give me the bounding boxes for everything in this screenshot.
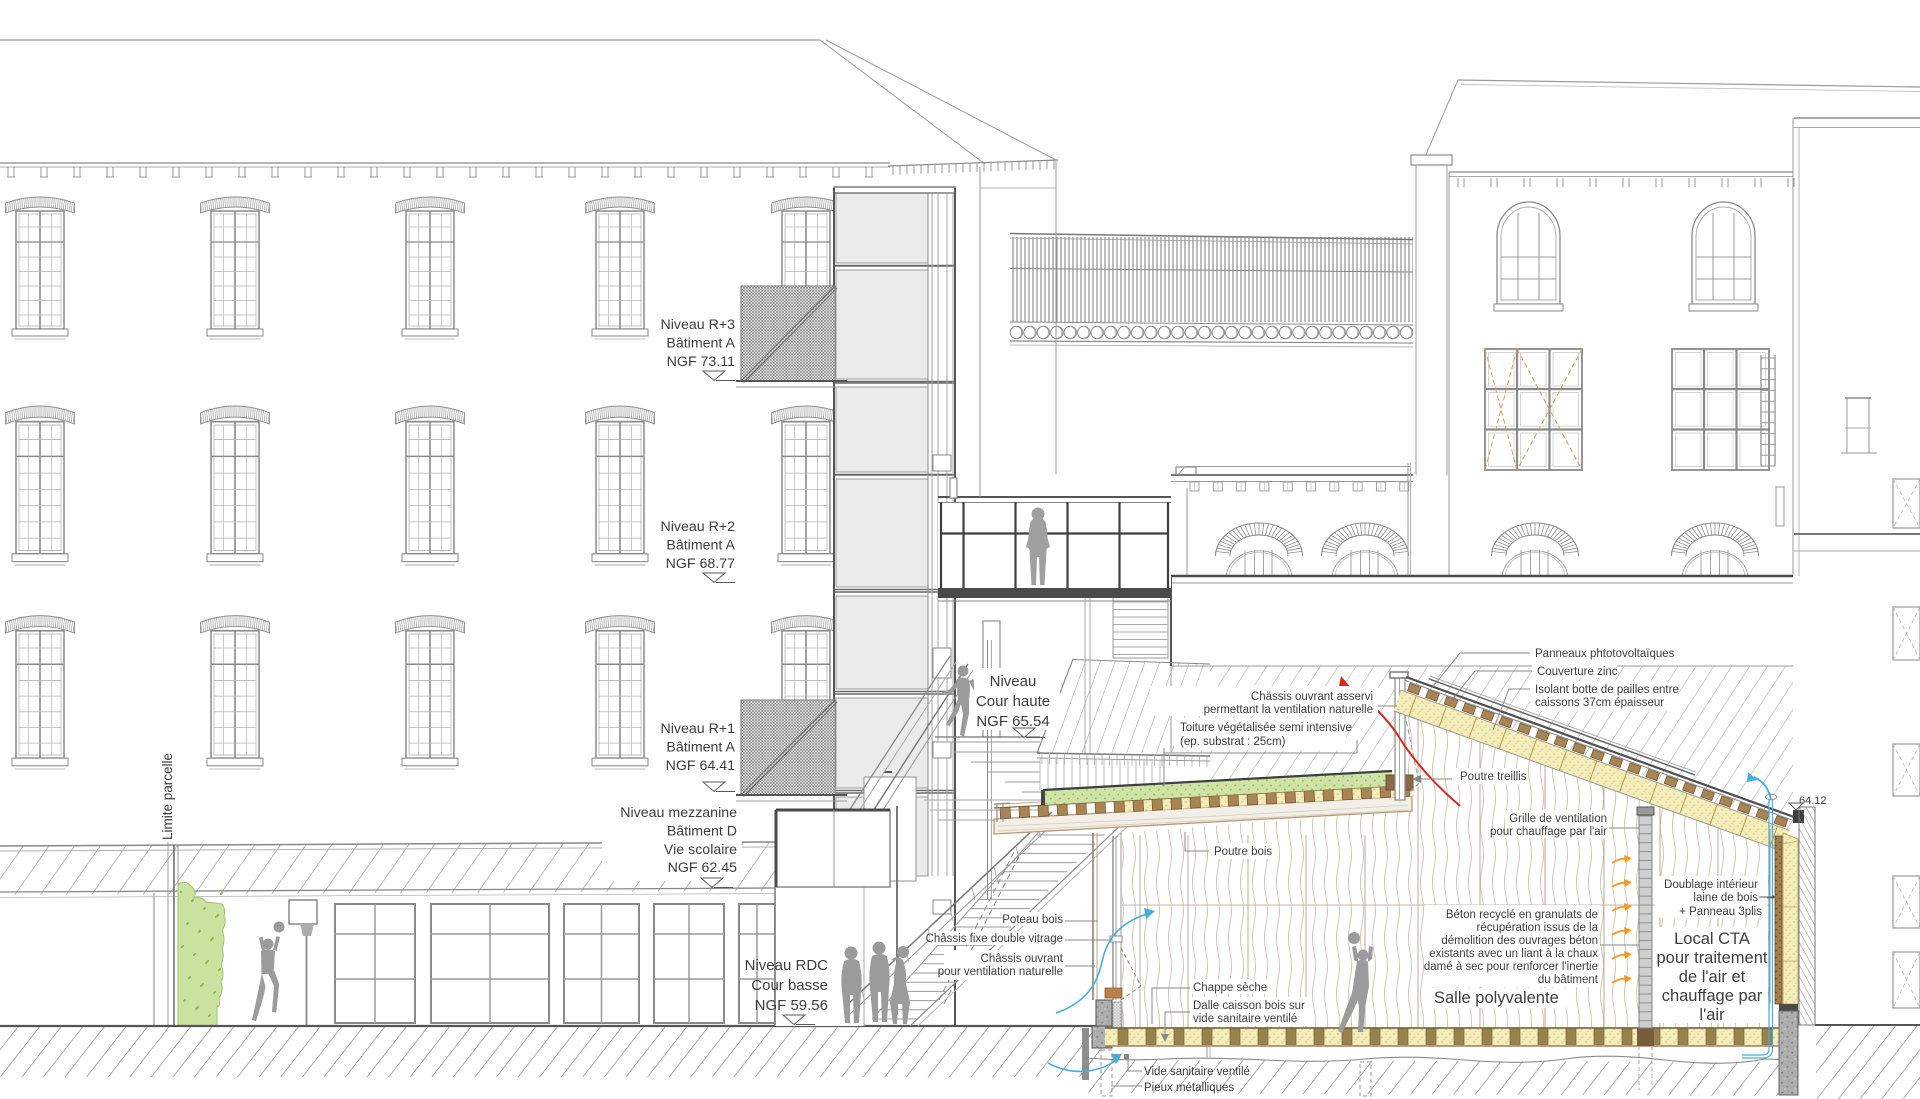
svg-text:64.12: 64.12: [1799, 795, 1827, 807]
svg-text:Chappe sèche: Chappe sèche: [1193, 982, 1267, 994]
svg-text:du bâtiment: du bâtiment: [1538, 974, 1599, 986]
svg-text:Toiture végétalisée semi inten: Toiture végétalisée semi intensive: [1180, 722, 1352, 734]
svg-text:NGF 64.41: NGF 64.41: [666, 758, 736, 774]
svg-text:Grille de ventilation: Grille de ventilation: [1509, 813, 1607, 825]
svg-text:Cour haute: Cour haute: [976, 693, 1050, 710]
svg-text:NGF 65.54: NGF 65.54: [976, 713, 1049, 730]
svg-text:Chässis ouvrant asservi: Chässis ouvrant asservi: [1251, 691, 1373, 703]
svg-text:+ Panneau 3plis: + Panneau 3plis: [1679, 906, 1762, 918]
svg-text:démolition des ouvrages béton: démolition des ouvrages béton: [1441, 935, 1598, 947]
svg-text:Niveau R+1: Niveau R+1: [660, 721, 735, 737]
svg-text:NGF 62.45: NGF 62.45: [668, 860, 738, 876]
svg-text:Limite parcelle: Limite parcelle: [160, 753, 175, 840]
svg-text:Bâtiment A: Bâtiment A: [666, 335, 735, 351]
svg-text:Dalle caisson bois sur: Dalle caisson bois sur: [1193, 1000, 1305, 1012]
svg-text:de l'air et: de l'air et: [1679, 968, 1746, 986]
svg-text:Béton recyclé en granulats de: Béton recyclé en granulats de: [1446, 909, 1598, 921]
svg-text:Local CTA: Local CTA: [1674, 930, 1750, 948]
svg-text:Châssis fixe double vitrage: Châssis fixe double vitrage: [926, 933, 1063, 945]
svg-text:récupération issus de la: récupération issus de la: [1477, 922, 1599, 934]
svg-text:Niveau mezzanine: Niveau mezzanine: [620, 805, 737, 821]
svg-text:NGF 59.56: NGF 59.56: [755, 997, 828, 1014]
svg-text:Vie scolaire: Vie scolaire: [664, 842, 737, 858]
svg-text:existants avec un liant à la c: existants avec un liant à la chaux: [1429, 948, 1598, 960]
svg-text:NGF 68.77: NGF 68.77: [666, 556, 736, 572]
svg-text:(ep. substrat : 25cm): (ep. substrat : 25cm): [1180, 736, 1286, 748]
svg-text:NGF 73.11: NGF 73.11: [667, 354, 735, 370]
svg-text:Bâtiment D: Bâtiment D: [667, 823, 737, 839]
svg-text:damé à sec pour renforcer l'in: damé à sec pour renforcer l'inertie: [1424, 961, 1598, 973]
svg-text:Niveau R+2: Niveau R+2: [660, 519, 735, 535]
svg-text:pour ventilation naturelle: pour ventilation naturelle: [938, 966, 1063, 978]
svg-text:permettant la ventilation natu: permettant la ventilation naturelle: [1204, 704, 1373, 716]
svg-text:caissons 37cm épaisseur: caissons 37cm épaisseur: [1535, 697, 1664, 709]
svg-text:Niveau R+3: Niveau R+3: [660, 317, 735, 333]
svg-text:Bâtiment A: Bâtiment A: [666, 537, 735, 553]
svg-text:chauffage par: chauffage par: [1662, 987, 1763, 1005]
svg-text:Niveau: Niveau: [990, 673, 1037, 690]
svg-text:l'air: l'air: [1699, 1006, 1725, 1024]
svg-text:Poutre treillis: Poutre treillis: [1460, 771, 1527, 783]
svg-text:pour traitement: pour traitement: [1657, 949, 1768, 967]
svg-text:Niveau RDC: Niveau RDC: [745, 957, 829, 974]
svg-text:Poutre bois: Poutre bois: [1214, 846, 1272, 858]
svg-text:Salle polyvalente: Salle polyvalente: [1434, 989, 1559, 1007]
svg-text:Poteau bois: Poteau bois: [1002, 914, 1063, 926]
svg-text:Vide sanitaire ventilé: Vide sanitaire ventilé: [1144, 1066, 1250, 1078]
svg-text:Cour basse: Cour basse: [751, 977, 828, 994]
svg-text:Doublage intérieur: Doublage intérieur: [1664, 879, 1758, 891]
svg-text:Isolant botte de pailles entre: Isolant botte de pailles entre: [1535, 684, 1679, 696]
svg-text:Châssis ouvrant: Châssis ouvrant: [981, 953, 1064, 965]
svg-text:Bâtiment A: Bâtiment A: [666, 739, 735, 755]
svg-text:Pieux métalliques: Pieux métalliques: [1144, 1082, 1234, 1094]
svg-text:Panneaux phtotovoltaïques: Panneaux phtotovoltaïques: [1535, 648, 1675, 660]
svg-text:vide sanitaire ventilé: vide sanitaire ventilé: [1193, 1013, 1297, 1025]
svg-text:Couverture zinc: Couverture zinc: [1537, 666, 1618, 678]
svg-text:pour chauffage par l'air: pour chauffage par l'air: [1490, 826, 1607, 838]
svg-text:laine de bois: laine de bois: [1693, 892, 1758, 904]
